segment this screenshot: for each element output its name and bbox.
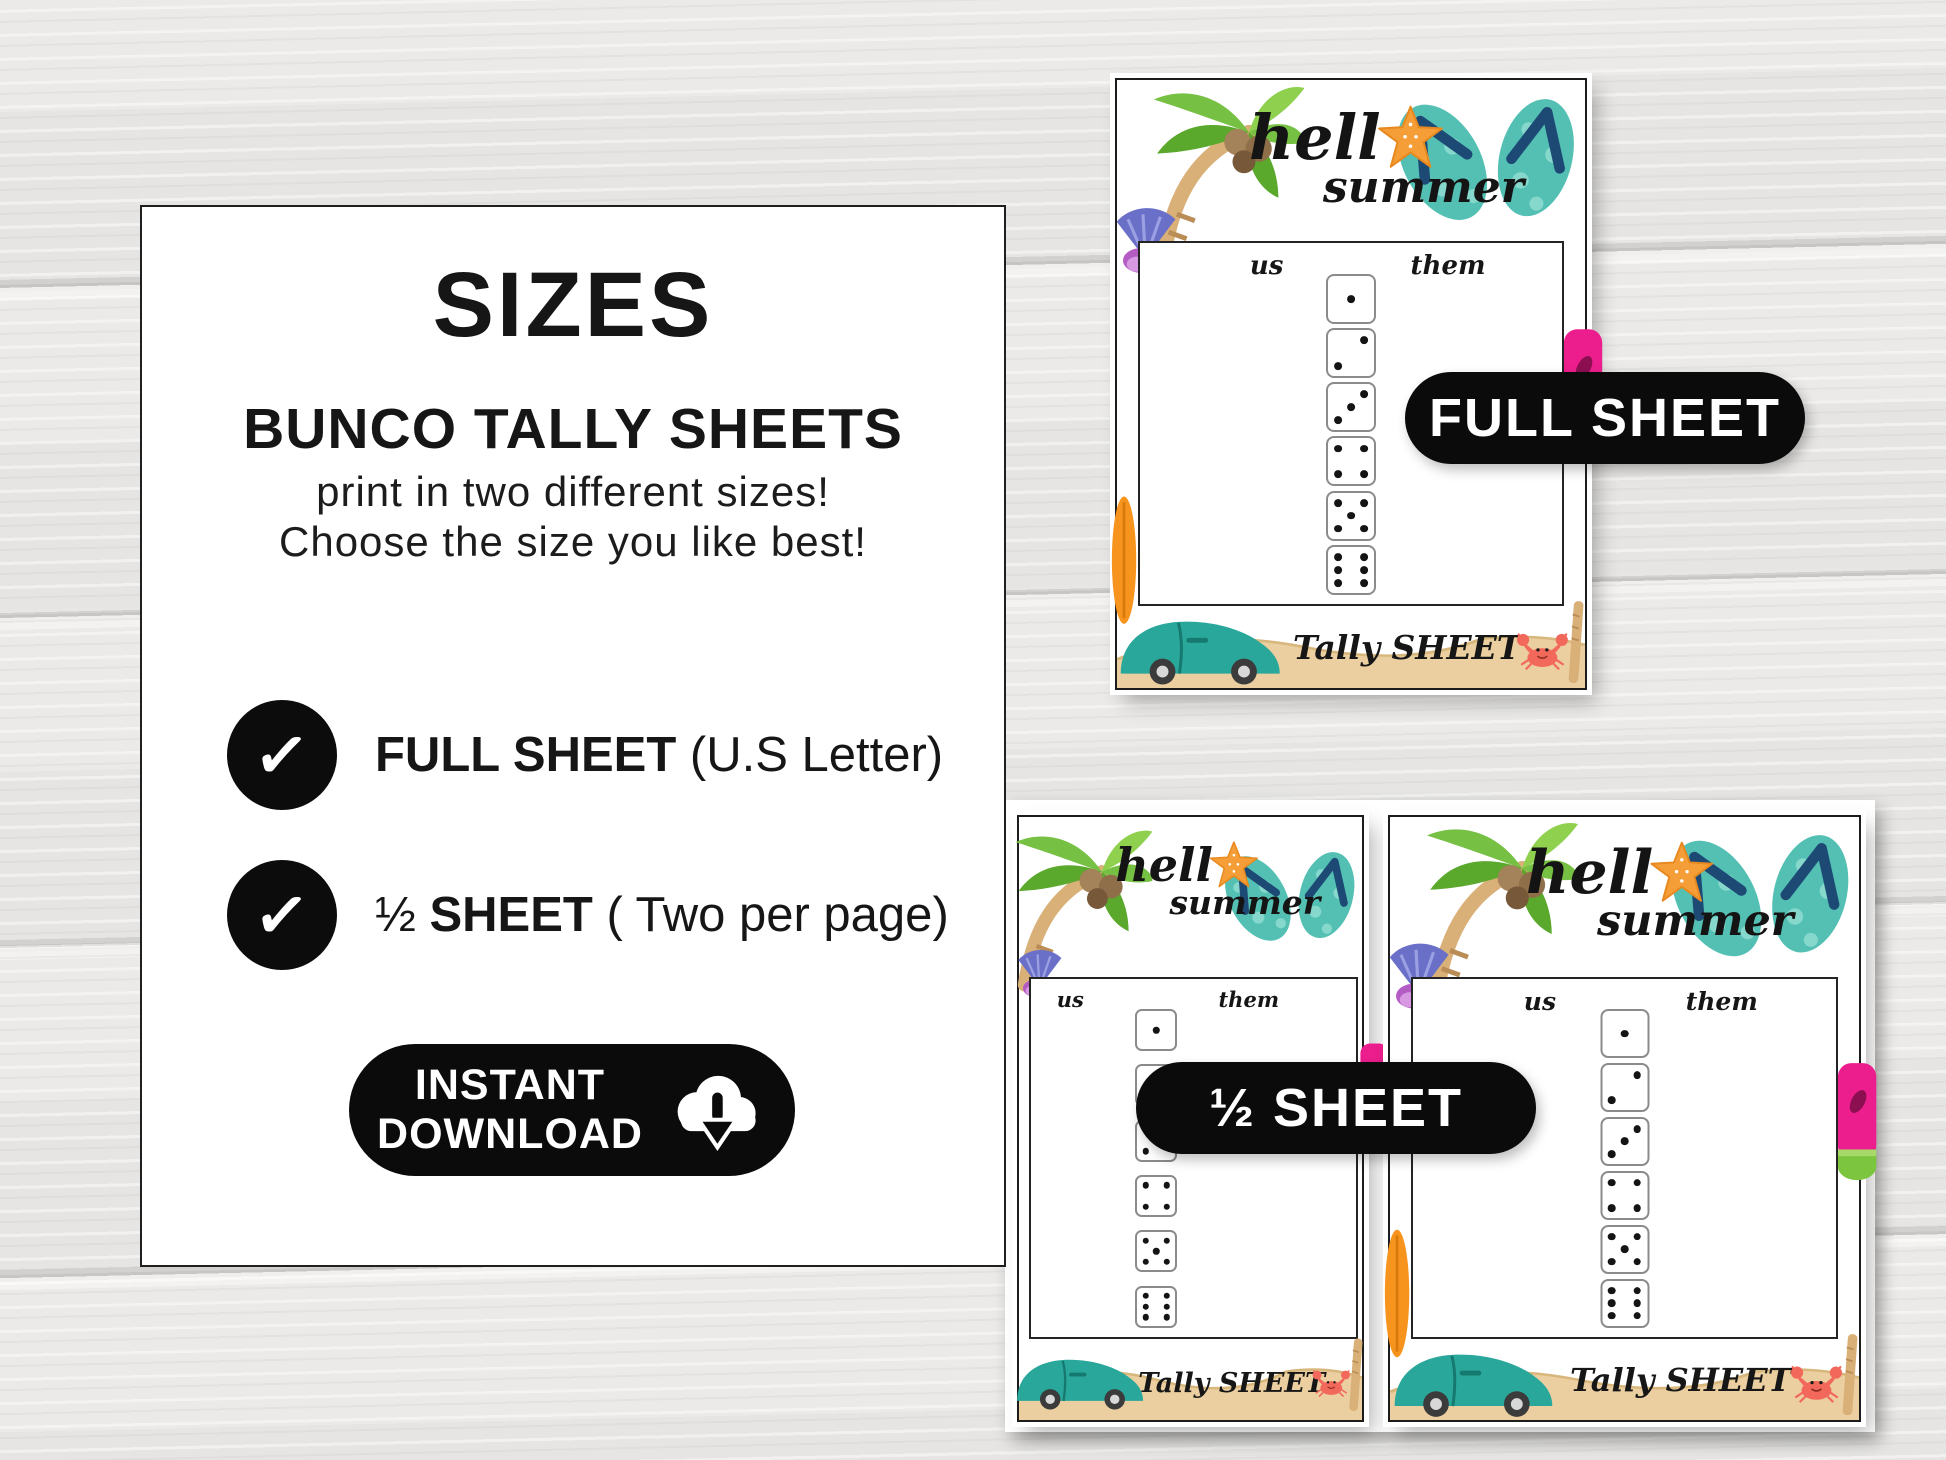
die-4-icon [1135, 1175, 1177, 1217]
sheet-footer: Tally SHEET [1390, 1339, 1859, 1420]
card-heading: BUNCO TALLY SHEETS [142, 396, 1004, 462]
die-1-icon [1326, 274, 1376, 324]
half-sheet-badge: ½ SHEET [1136, 1062, 1536, 1154]
tally-sheet-label: Tally SHEET [1293, 628, 1521, 667]
sheet-footer: Tally SHEET [1117, 606, 1585, 688]
score-box: us them [1029, 977, 1358, 1339]
dice-column [1600, 1009, 1649, 1327]
die-5-icon [1326, 491, 1376, 541]
die-6-icon [1600, 1279, 1649, 1328]
die-4-icon [1600, 1171, 1649, 1220]
tally-sheet-label: Tally SHEET [1138, 1368, 1325, 1399]
die-2-icon [1600, 1063, 1649, 1112]
crab-icon [1309, 1351, 1354, 1412]
card-subline-2: Choose the size you like best! [142, 518, 1004, 566]
popsicle-icon [1836, 1016, 1878, 1233]
cloud-download-icon [663, 1062, 767, 1158]
die-4-icon [1326, 436, 1376, 486]
sizes-info-card: SIZES BUNCO TALLY SHEETS print in two di… [140, 205, 1006, 1267]
crab-icon [1786, 1351, 1847, 1412]
die-5-icon [1600, 1225, 1649, 1274]
dice-column [1135, 1009, 1177, 1327]
checkmark-icon: ✓ [251, 719, 313, 790]
dice-column [1326, 274, 1376, 595]
check-circle-icon: ✓ [227, 860, 337, 970]
die-1-icon [1135, 1009, 1177, 1051]
option-half-sheet: ✓ ½ SHEET ( Two per page) [227, 860, 949, 970]
die-2-icon [1326, 328, 1376, 378]
full-sheet-badge: FULL SHEET [1405, 372, 1805, 464]
hello-summer-title: hell summer [1112, 838, 1263, 922]
them-label: them [1218, 987, 1279, 1012]
option-label: ½ SHEET ( Two per page) [375, 887, 949, 943]
die-3-icon [1326, 382, 1376, 432]
check-circle-icon: ✓ [227, 700, 337, 810]
option-full-sheet: ✓ FULL SHEET (U.S Letter) [227, 700, 943, 810]
checkmark-icon: ✓ [251, 879, 313, 950]
hello-summer-title: hell summer [1522, 838, 1718, 946]
score-box: us them [1411, 977, 1838, 1339]
beach-car-icon [1383, 1343, 1566, 1418]
hello-summer-title: hell summer [1246, 101, 1447, 213]
die-6-icon [1135, 1286, 1177, 1328]
page-title: SIZES [142, 253, 1004, 358]
us-label: us [1057, 987, 1084, 1012]
instant-download-text: INSTANT DOWNLOAD [377, 1061, 643, 1160]
tally-sheet-label: Tally SHEET [1570, 1361, 1791, 1399]
us-label: us [1524, 987, 1556, 1016]
die-6-icon [1326, 545, 1376, 595]
beach-car-icon [1014, 1343, 1148, 1418]
die-5-icon [1135, 1230, 1177, 1272]
die-3-icon [1600, 1117, 1649, 1166]
crab-icon [1512, 618, 1573, 680]
beach-car-icon [1110, 610, 1293, 686]
instant-download-badge: INSTANT DOWNLOAD [349, 1044, 795, 1176]
us-label: us [1250, 251, 1284, 281]
card-subline-1: print in two different sizes! [142, 468, 1004, 516]
sheet-footer: Tally SHEET [1019, 1339, 1362, 1420]
them-label: them [1411, 251, 1486, 281]
them-label: them [1686, 987, 1758, 1016]
option-label: FULL SHEET (U.S Letter) [375, 727, 943, 783]
die-1-icon [1600, 1009, 1649, 1058]
